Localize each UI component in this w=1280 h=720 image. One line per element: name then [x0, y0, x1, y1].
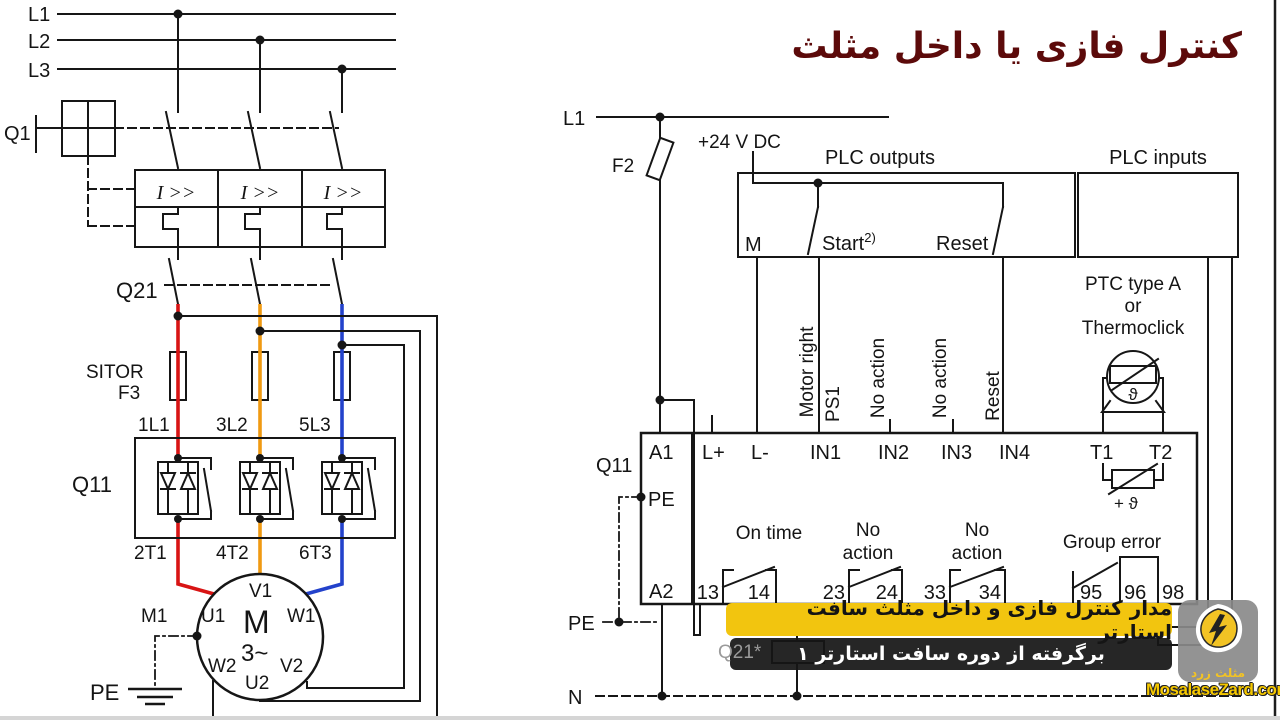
ptc-sensor: PTC type A or Thermoclick ϑ	[1082, 274, 1185, 433]
ctrl-pe-label: PE	[568, 613, 595, 635]
phase-l1-label: L1	[28, 4, 50, 26]
terminal-2t1: 2T1	[134, 543, 167, 564]
soft-starter-device: Q11 A1 PE A2 L+ L- IN1 IN2 IN3 IN4 T1 T2…	[596, 433, 1197, 604]
on-time-label: On time	[736, 523, 803, 544]
start-text: Start	[822, 233, 865, 255]
phase-l3-label: L3	[28, 60, 50, 82]
phase-drops	[178, 14, 342, 112]
terminal-5l3: 5L3	[299, 415, 331, 436]
logo-website: MosalaseZard.com	[1146, 680, 1280, 700]
term-t1: T1	[1090, 442, 1113, 464]
thyristor-cell	[240, 454, 293, 523]
q1-label: Q1	[4, 123, 31, 145]
junction-dot	[256, 515, 264, 523]
q21-contactor: Q21	[116, 247, 342, 304]
plc-out-reset: Reset	[936, 233, 989, 255]
plc-inputs-box	[1078, 173, 1238, 257]
q21-label: Q21	[116, 278, 158, 303]
start-superscript: 2)	[864, 230, 876, 245]
ctrl-l1-label: L1	[563, 108, 585, 130]
logo-persian-name: مثلث زرد	[1178, 666, 1258, 680]
q11-label: Q11	[72, 472, 112, 497]
earth-bars	[128, 689, 182, 704]
junction-dot	[658, 692, 667, 701]
pe-bond-dashdot	[155, 636, 197, 687]
motor-m: M	[243, 604, 270, 640]
junction-dot	[637, 493, 646, 502]
no-action-label: No	[965, 520, 989, 541]
supply-24v-label: +24 V DC	[698, 132, 781, 153]
plc-outputs-box	[738, 173, 1075, 257]
term-in3: IN3	[941, 442, 972, 464]
q21-stubs	[178, 247, 342, 259]
plc-outputs-title: PLC outputs	[825, 147, 935, 169]
device-q11-label: Q11	[596, 455, 632, 477]
junction-dot	[338, 341, 347, 350]
term-13: 13	[697, 582, 719, 604]
junction-dot	[338, 515, 346, 523]
terminal-3l2: 3L2	[216, 415, 248, 436]
thermal-element	[327, 207, 342, 247]
q1-contact-blades	[166, 112, 342, 168]
ptc-label-1: PTC type A	[1085, 274, 1181, 295]
q21-coil-label: Q21*	[718, 642, 761, 664]
term-pe: PE	[648, 489, 675, 511]
f2-fuse-symbol	[647, 138, 674, 180]
terminal-4t2: 4T2	[216, 543, 249, 564]
screenshot-root: L1 L2 L3 Q1 I >> I >>	[0, 0, 1280, 720]
no-action-label: action	[952, 543, 1003, 564]
page-title: کنترل فازی یا داخل مثلث	[791, 26, 1242, 67]
pe-label: PE	[90, 680, 119, 705]
motor-terminal-w1: W1	[287, 606, 316, 627]
junction-dot	[793, 692, 802, 701]
term-in2: IN2	[878, 442, 909, 464]
in1-func-ps1: PS1	[823, 386, 844, 422]
term-lplus: L+	[702, 442, 725, 464]
term-in1: IN1	[810, 442, 841, 464]
in4-func-reset: Reset	[983, 370, 1004, 420]
junction-dot	[338, 454, 346, 462]
junction-dot	[174, 454, 182, 462]
caption-banner-yellow: مدار کنترل فازی و داخل مثلث سافت استارتر	[726, 603, 1172, 636]
ground-symbol: PE	[90, 680, 182, 705]
f2-label: F2	[612, 156, 634, 177]
terminal-1l1: 1L1	[138, 415, 170, 436]
plc-out-start: Start2)	[822, 230, 876, 255]
thyristor-cell	[322, 454, 375, 523]
sitor-label: SITOR	[86, 362, 144, 383]
overload-trip-label: I >>	[240, 182, 280, 204]
motor-terminal-v1: V1	[249, 581, 272, 602]
overload-trip-label: I >>	[156, 182, 196, 204]
triangle-logo-icon	[1178, 600, 1258, 660]
junction-dot	[174, 312, 183, 321]
term-t2: T2	[1149, 442, 1172, 464]
phase-l2-label: L2	[28, 31, 50, 53]
junction-dot	[814, 179, 823, 188]
m1-label: M1	[141, 606, 167, 627]
term-in4: IN4	[999, 442, 1030, 464]
thyristor-pair	[243, 473, 277, 489]
bottom-edge-strip	[0, 716, 1280, 720]
f3-label: F3	[118, 383, 140, 404]
motor: V1 U1 W1 M 3~ W2 V2 U2 M1	[141, 574, 323, 700]
in1-func-motor-right: Motor right	[797, 326, 818, 418]
terminal-6t3: 6T3	[299, 543, 332, 564]
q21-contact-blades	[169, 259, 342, 304]
term-lminus: L-	[751, 442, 769, 464]
no-action-label: No	[856, 520, 880, 541]
motor-terminal-w2: W2	[208, 656, 237, 677]
thyristor-pair	[325, 473, 359, 489]
no-action-label: action	[843, 543, 894, 564]
caption-banner-black: برگرفته از دوره سافت استارتر ۱	[730, 638, 1172, 670]
ptc-theta: ϑ	[1128, 385, 1138, 404]
sitor-fuses: SITOR F3	[86, 352, 350, 404]
in2-func-no-action: No action	[868, 338, 889, 418]
motor-terminal-v2: V2	[280, 656, 303, 677]
neutral-label: N	[568, 687, 582, 709]
thermal-element	[163, 207, 178, 247]
plc-out-m: M	[745, 234, 762, 256]
q11-power-block: Q11	[72, 438, 395, 538]
motor-phase: 3~	[241, 640, 268, 667]
wire-l1-red-lower	[178, 519, 214, 594]
thyristor-cell	[158, 454, 211, 523]
group-error-label: Group error	[1063, 532, 1162, 553]
motor-terminal-u2: U2	[245, 673, 269, 694]
power-circuit: L1 L2 L3 Q1 I >> I >>	[4, 4, 437, 717]
thermal-element	[245, 207, 260, 247]
plus-theta-label: + ϑ	[1114, 494, 1139, 513]
plc-inputs-title: PLC inputs	[1109, 147, 1207, 169]
junction-dot	[615, 618, 624, 627]
internal-thermistor-diag	[1109, 464, 1157, 494]
thyristor-pair	[161, 473, 195, 489]
term-a1: A1	[649, 442, 673, 464]
junction-dot	[256, 327, 265, 336]
ptc-label-2: or	[1125, 296, 1143, 317]
junction-dot	[256, 454, 264, 462]
junction-dot	[174, 515, 182, 523]
ptc-label-3: Thermoclick	[1082, 318, 1185, 339]
motor-terminal-u1: U1	[201, 606, 225, 627]
term-a2: A2	[649, 581, 673, 603]
in3-func-no-action: No action	[930, 338, 951, 418]
logo-badge: مثلث زرد	[1178, 600, 1258, 682]
overload-trip-label: I >>	[323, 182, 363, 204]
overload-block: I >> I >> I >>	[135, 170, 385, 247]
q1-trip-link-dash	[88, 156, 135, 226]
